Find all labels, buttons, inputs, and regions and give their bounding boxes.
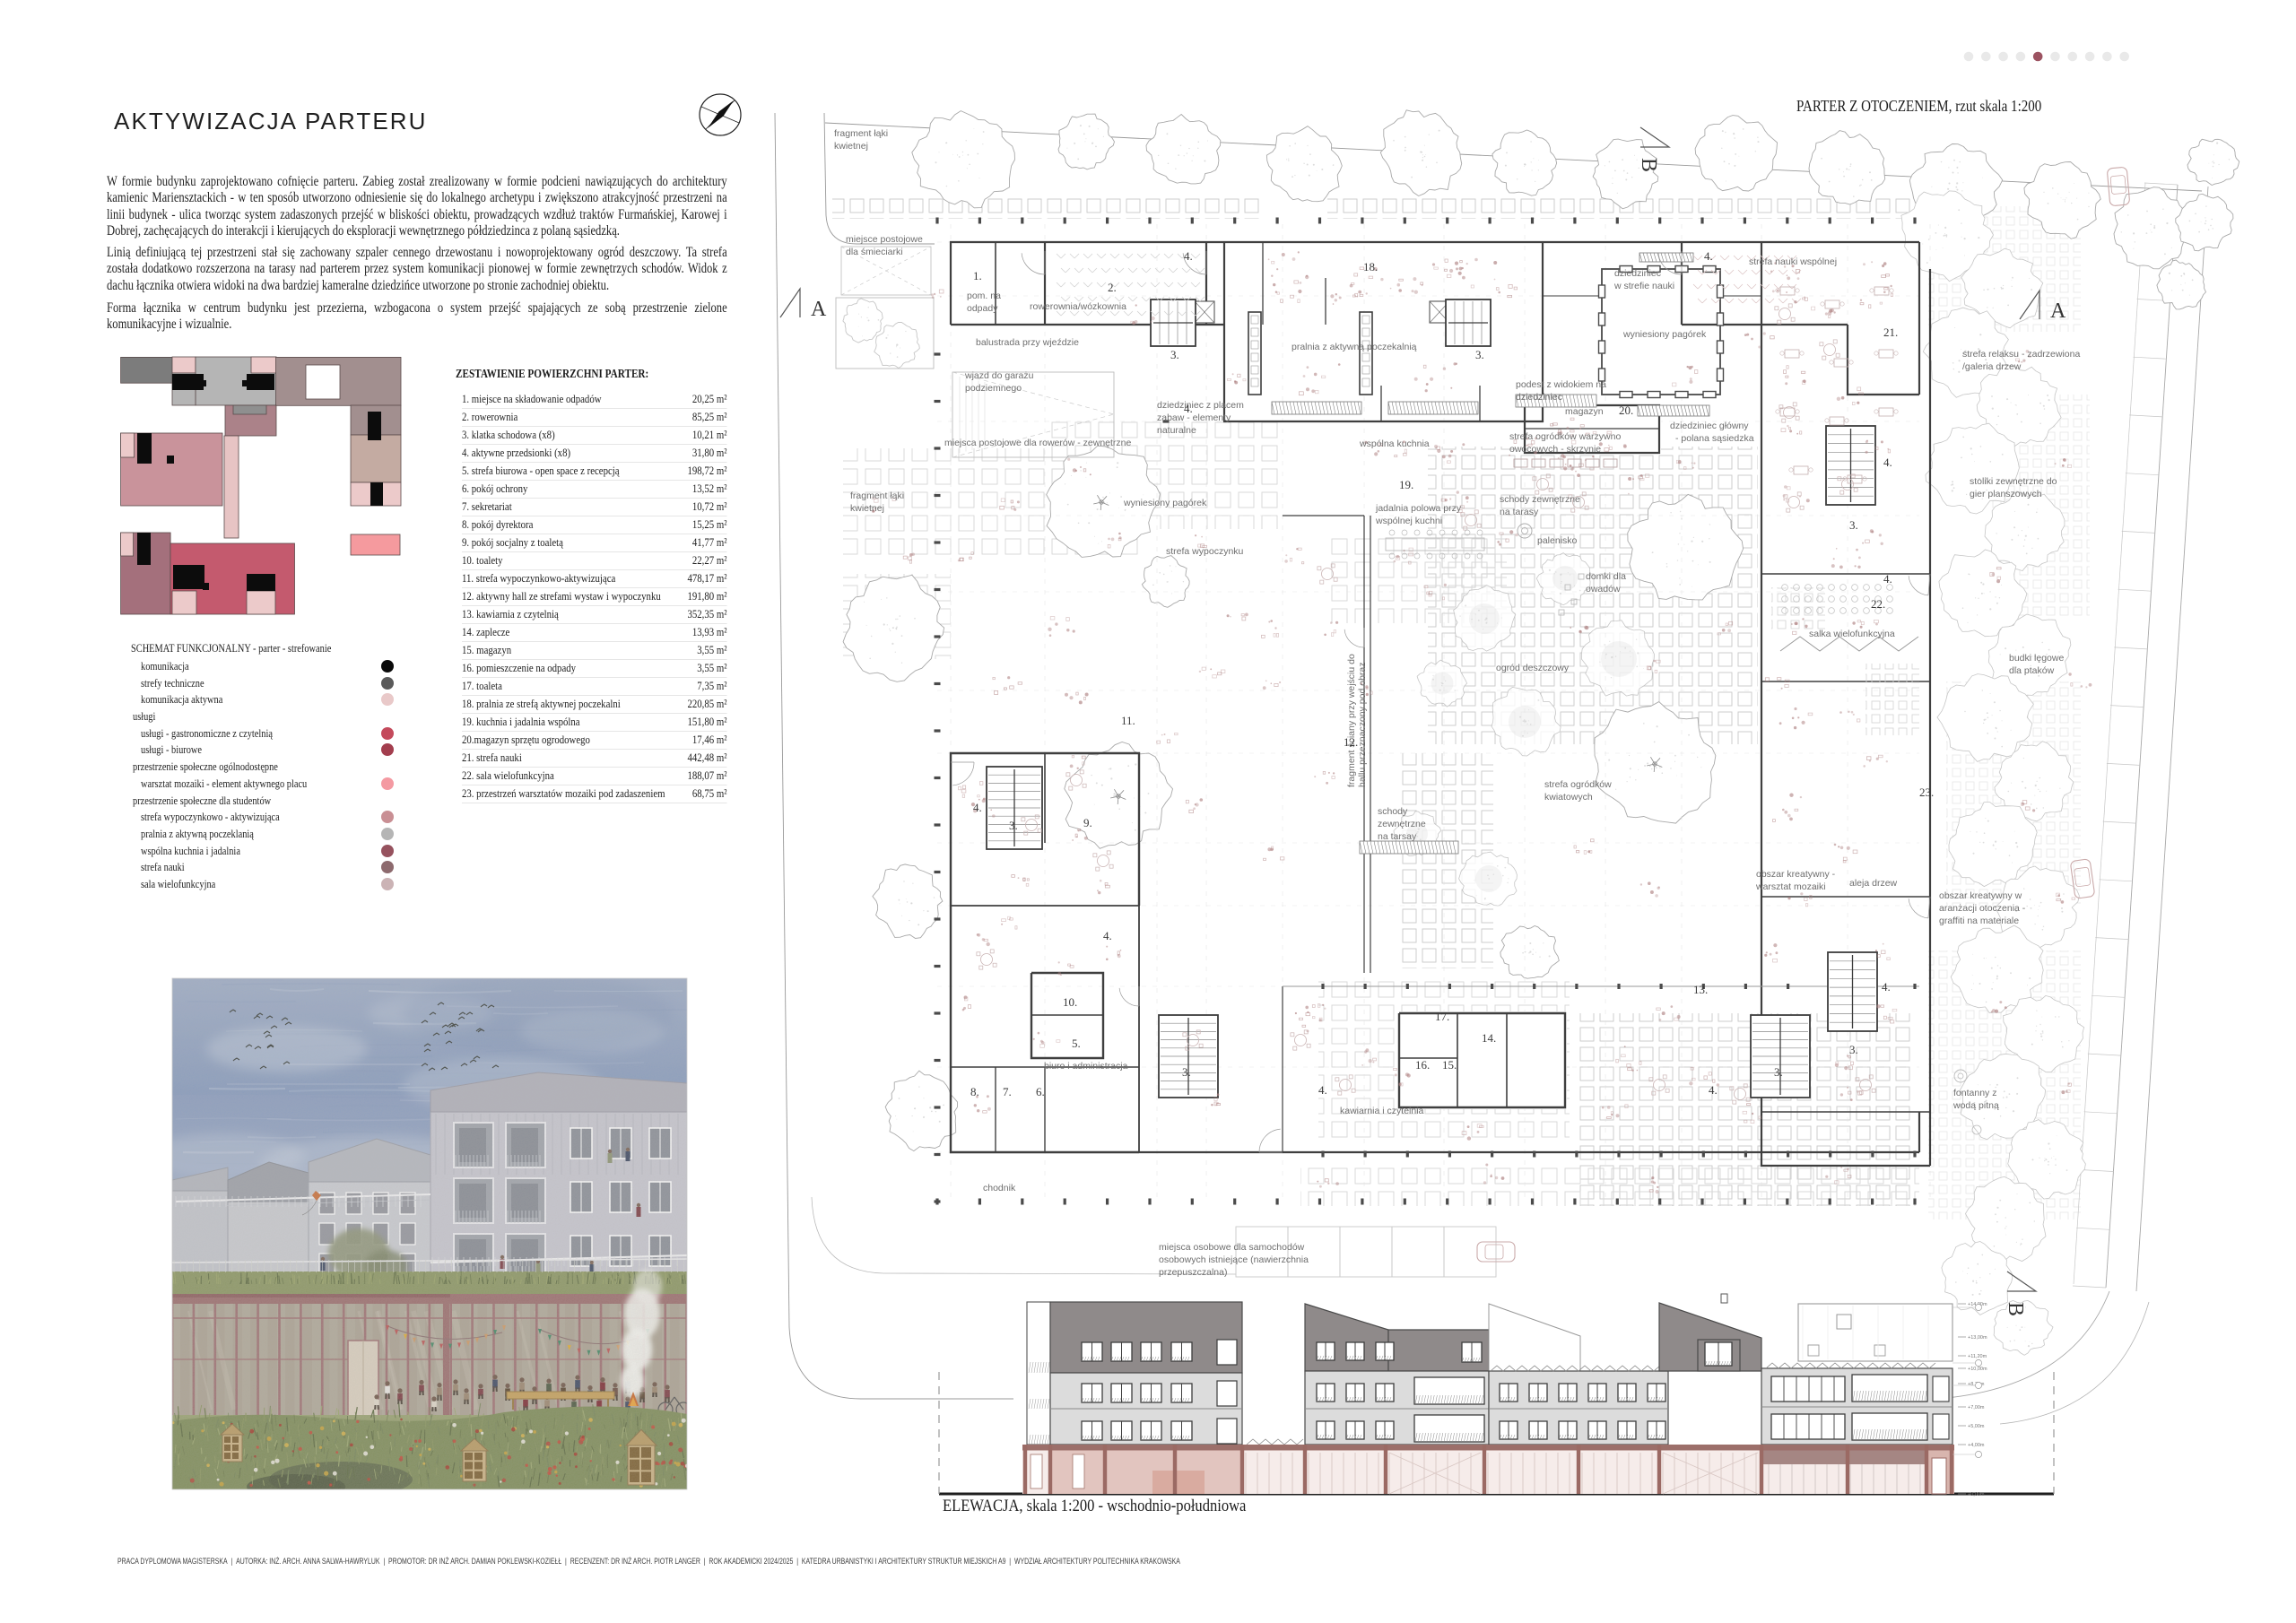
svg-text:chodnik: chodnik [983,1183,1016,1193]
svg-text:3.: 3. [1774,1065,1783,1079]
svg-text:dla ptaków: dla ptaków [2009,665,2055,676]
svg-text:naturalne: naturalne [1157,425,1196,436]
svg-text:strefa wypoczynku: strefa wypoczynku [1166,546,1244,557]
svg-text:aranżacji otoczenia -: aranżacji otoczenia - [1939,903,2026,914]
svg-text:dziedziniec z placem: dziedziniec z placem [1157,400,1244,411]
svg-text:4.: 4. [973,801,982,814]
svg-text:17.: 17. [1435,1010,1449,1023]
svg-text:+7,00m: +7,00m [1968,1405,1985,1410]
svg-text:graffiti na materiale: graffiti na materiale [1939,916,2019,926]
svg-text:strefa nauki wspólnej: strefa nauki wspólnej [1749,256,1837,267]
svg-text:obszar kreatywny -: obszar kreatywny - [1756,869,1836,880]
svg-text:10.: 10. [1063,995,1077,1009]
svg-text:9.: 9. [1083,816,1092,829]
svg-text:przepuszczalna): przepuszczalna) [1159,1267,1227,1278]
svg-text:dziedziniec: dziedziniec [1516,392,1562,403]
svg-text:B: B [1637,158,1660,172]
svg-text:obszar kreatywny w: obszar kreatywny w [1939,890,2022,901]
svg-text:salka wielofunkcyjna: salka wielofunkcyjna [1809,629,1895,639]
svg-text:4.: 4. [1184,402,1193,415]
svg-text:wyniesiony pagórek: wyniesiony pagórek [1622,329,1707,340]
svg-text:- polana sąsiedzka: - polana sąsiedzka [1675,433,1754,444]
svg-text:dziedziniec główny: dziedziniec główny [1670,421,1749,431]
svg-text:4.: 4. [1318,1083,1327,1097]
svg-text:11.: 11. [1121,714,1135,727]
svg-text:3.: 3. [1182,1065,1191,1079]
svg-text:na tarsay: na tarsay [1378,831,1417,842]
svg-text:zewnętrzne: zewnętrzne [1378,819,1426,829]
svg-text:kwiatowych: kwiatowych [1544,792,1593,803]
svg-text:18.: 18. [1363,260,1378,273]
svg-text:wyniesiony pagórek: wyniesiony pagórek [1123,498,1207,508]
svg-text:na tarasy: na tarasy [1500,507,1539,517]
svg-text:4.: 4. [1184,249,1193,263]
svg-text:podziemnego: podziemnego [965,383,1022,394]
svg-text:w strefie nauki: w strefie nauki [1613,281,1674,291]
svg-text:+5,00m: +5,00m [1968,1424,1985,1429]
svg-text:fragment łąki: fragment łąki [850,490,904,501]
svg-text:14.: 14. [1482,1031,1496,1045]
svg-text:kawiarnia i czytelnia: kawiarnia i czytelnia [1340,1106,1424,1116]
svg-text:warsztat mozaiki: warsztat mozaiki [1755,881,1826,892]
svg-text:ogród deszczowy: ogród deszczowy [1496,663,1570,673]
svg-text:budki lęgowe: budki lęgowe [2009,653,2064,664]
svg-text:+11,20m: +11,20m [1968,1354,1987,1359]
svg-text:miejsca postojowe dla rowerów: miejsca postojowe dla rowerów - zewnętrz… [944,438,1131,448]
svg-text:+4,00m: +4,00m [1968,1443,1985,1448]
svg-text:4.: 4. [1709,1083,1718,1097]
svg-text:domki dla: domki dla [1586,571,1626,582]
svg-text:+13,00m: +13,00m [1968,1335,1987,1341]
svg-text:19.: 19. [1399,478,1413,491]
svg-text:dziedziniec: dziedziniec [1614,268,1661,279]
svg-text:biuro i administracja: biuro i administracja [1044,1061,1128,1072]
svg-text:3.: 3. [1849,1043,1858,1056]
svg-text:3.: 3. [1170,348,1179,361]
svg-text:odpady: odpady [967,303,998,314]
svg-text:5.: 5. [1072,1037,1081,1050]
svg-text:A: A [811,298,827,321]
svg-text:wodą pitną: wodą pitną [1952,1100,1999,1111]
svg-text:fragment ściany przy wejściu d: fragment ściany przy wejściu do [1346,654,1357,787]
svg-text:3.: 3. [1009,819,1018,832]
svg-text:kwietnej: kwietnej [850,503,884,514]
svg-text:20.: 20. [1619,404,1633,417]
svg-text:8.: 8. [970,1085,979,1098]
svg-text:dla śmieciarki: dla śmieciarki [846,247,903,257]
svg-text:strefa ogródków: strefa ogródków [1544,779,1612,790]
svg-text:fontanny z: fontanny z [1953,1088,1996,1098]
svg-text:pom. na: pom. na [967,291,1001,301]
svg-text:/galeria drzew: /galeria drzew [1962,361,2022,372]
svg-text:7.: 7. [1003,1085,1012,1098]
svg-text:stoliki zewnętrzne do: stoliki zewnętrzne do [1970,476,2057,487]
svg-text:21.: 21. [1883,325,1898,339]
svg-text:3.: 3. [1475,348,1484,361]
svg-text:strefa relaksu - zadrzewiona: strefa relaksu - zadrzewiona [1962,349,2080,360]
svg-text:16.: 16. [1415,1058,1430,1072]
svg-text:hallu przeznaczony pod obraz: hallu przeznaczony pod obraz [1357,662,1368,787]
svg-text:wspólnej kuchni: wspólnej kuchni [1375,516,1442,526]
svg-text:2.: 2. [1108,281,1117,294]
svg-text:4.: 4. [1883,572,1892,586]
svg-text:12.: 12. [1344,735,1358,749]
svg-text:4.: 4. [1103,929,1112,942]
svg-text:palenisko: palenisko [1537,535,1578,546]
svg-text:schody: schody [1378,806,1408,817]
svg-text:strefa ogródków warzywno: strefa ogródków warzywno [1509,431,1621,442]
svg-text:rowerownia/wózkownia: rowerownia/wózkownia [1030,301,1126,312]
svg-text:jadalnia polowa przy: jadalnia polowa przy [1375,503,1462,514]
svg-text:B: B [2004,1302,2027,1316]
svg-text:fragment łąki: fragment łąki [834,128,888,139]
svg-text:A: A [2050,299,2066,323]
svg-text:+10,00m: +10,00m [1968,1367,1987,1372]
svg-text:aleja drzew: aleja drzew [1849,878,1898,889]
svg-text:schody zewnętrzne: schody zewnętrzne [1500,494,1580,505]
svg-text:4.: 4. [1883,456,1892,469]
svg-text:13.: 13. [1693,983,1708,996]
svg-text:owocowych - skrzynie: owocowych - skrzynie [1509,444,1601,455]
svg-text:1.: 1. [973,269,982,282]
svg-text:6.: 6. [1036,1085,1045,1098]
svg-text:4.: 4. [1704,249,1713,263]
svg-text:22.: 22. [1871,597,1885,611]
svg-text:3.: 3. [1849,518,1858,532]
svg-text:+0,00m: +0,00m [1968,1492,1985,1497]
svg-text:zabaw - elementy: zabaw - elementy [1157,412,1231,423]
svg-text:wjazd do garażu: wjazd do garażu [964,370,1034,381]
svg-text:balustrada przy wjeździe: balustrada przy wjeździe [976,337,1079,348]
svg-text:owadów: owadów [1586,584,1621,595]
svg-text:miejsca osobowe dla samochodów: miejsca osobowe dla samochodów [1159,1242,1305,1253]
svg-text:osobowych istniejące (nawierzc: osobowych istniejące (nawierzchnia [1159,1254,1309,1265]
svg-text:magazyn: magazyn [1565,406,1604,417]
svg-text:podest z widokiem na: podest z widokiem na [1516,379,1606,390]
svg-text:gier planszowych: gier planszowych [1970,489,2042,499]
svg-text:miejsce postojowe: miejsce postojowe [846,234,923,245]
svg-text:kwietnej: kwietnej [834,141,868,152]
svg-text:23.: 23. [1919,785,1934,799]
svg-text:4.: 4. [1882,980,1891,994]
svg-text:wspólna kuchnia: wspólna kuchnia [1359,438,1430,449]
svg-text:pralnia z aktywną poczekalnią: pralnia z aktywną poczekalnią [1291,342,1417,352]
svg-text:15.: 15. [1442,1058,1457,1072]
